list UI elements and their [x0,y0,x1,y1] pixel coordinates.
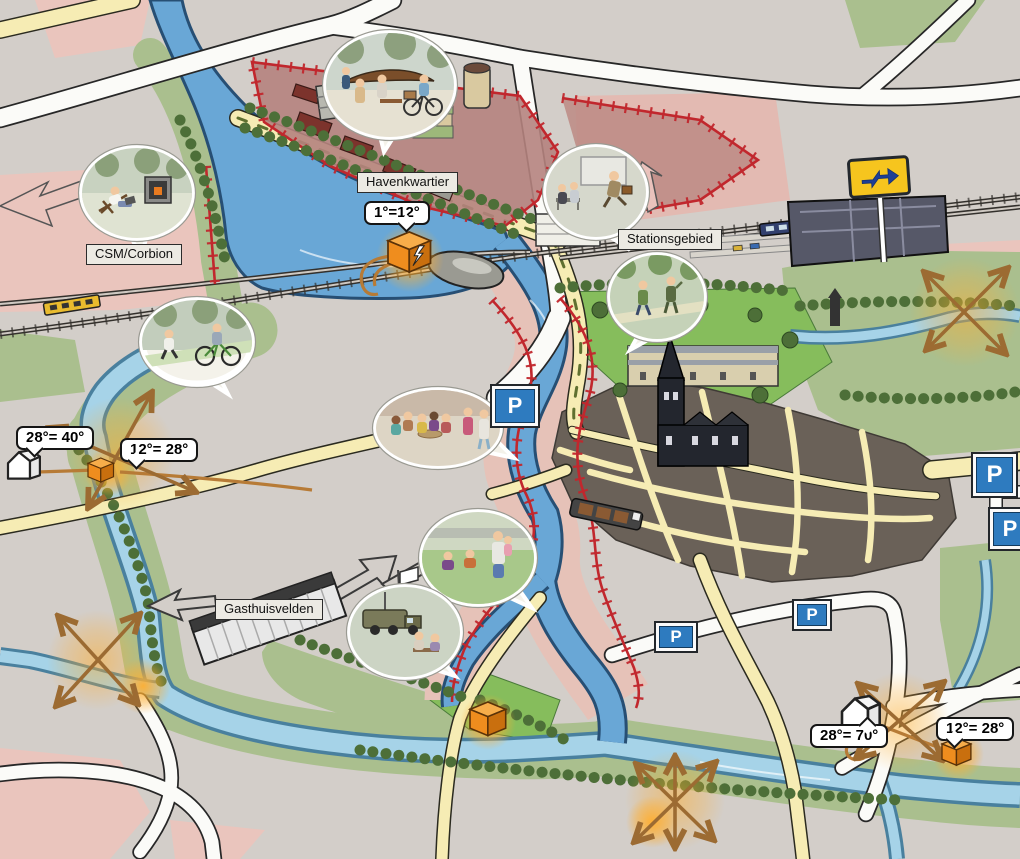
parking-sign: P [792,599,832,631]
area-label-stationsgebied: Stationsgebied [618,229,722,250]
callout-west-house: 28°= 40° [16,426,94,450]
parking-sign-letter: P [797,604,827,626]
callout-west-source: 12°= 28° [120,438,198,462]
silo [464,63,490,108]
area-label-csm-corbion: CSM/Corbion [86,244,182,265]
parking-sign-letter: P [495,389,535,423]
vignette-truck-visitors [347,584,464,681]
callout-text: 1°=12° [374,204,420,221]
parking-sign: P [988,507,1020,551]
parking-sign: P [654,621,698,653]
parking-sign-letter: P [976,457,1013,493]
callout-havenkwartier-heat: 1°=12° [364,201,430,225]
heat-source-box [470,702,506,736]
parking-sign: P [490,384,540,428]
briefcase [622,186,632,194]
illustrated-city-map: Havenkwartier CSM/Corbion Stationsgebied… [0,0,1020,859]
3d-printer [145,177,171,203]
seated-visitor-figure [414,632,424,651]
heat-source-box [388,232,431,272]
person-figure [342,67,350,89]
person-figure [558,184,567,204]
person-figure [377,75,387,99]
parking-sign: P [971,452,1018,498]
person-figure [570,182,579,203]
heat-source-box [88,458,114,482]
standing-figure [463,408,473,436]
ns-logo-icon [854,161,904,192]
ns-railway-sign [847,155,912,199]
castle [628,346,778,386]
parking-sign-letter: P [659,626,693,648]
callout-southeast-house: 28°= 70° [810,724,888,748]
area-label-gasthuisvelden: Gasthuisvelden [215,599,323,620]
area-label-havenkwartier: Havenkwartier [357,172,458,193]
callout-southeast-source: 12°= 28° [936,717,1014,741]
parking-sign-letter: P [993,512,1020,546]
person-figure [355,79,365,104]
